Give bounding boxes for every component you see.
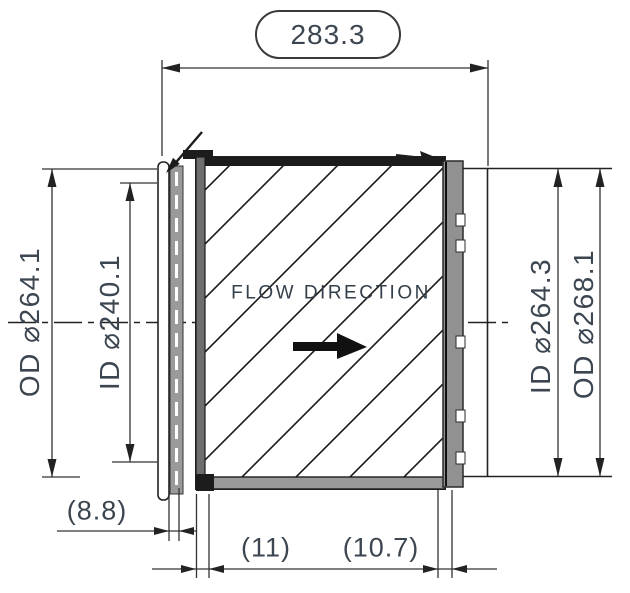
bottom-dim-left-label: (8.8) xyxy=(67,498,128,525)
right-id-label: ID ⌀264.3 xyxy=(527,258,555,394)
overall-length-label: 283.3 xyxy=(290,21,365,49)
flow-direction-label: FLOW DIRECTION xyxy=(231,284,431,303)
left-id-label: ID ⌀240.1 xyxy=(96,254,124,390)
right-od-label: OD ⌀268.1 xyxy=(570,249,598,399)
bottom-dim-right-label: (10.7) xyxy=(343,535,420,562)
inlet-sleeve xyxy=(158,162,169,500)
bottom-dim-middle-label: (11) xyxy=(241,535,291,562)
dimension-11-and-10-7 xyxy=(152,490,497,578)
left-od-label: OD ⌀264.1 xyxy=(16,247,44,397)
gasket-strip xyxy=(170,166,183,494)
technical-drawing: 283.3 OD ⌀264.1 ID ⌀240.1 ID ⌀264.3 OD ⌀… xyxy=(0,0,630,593)
